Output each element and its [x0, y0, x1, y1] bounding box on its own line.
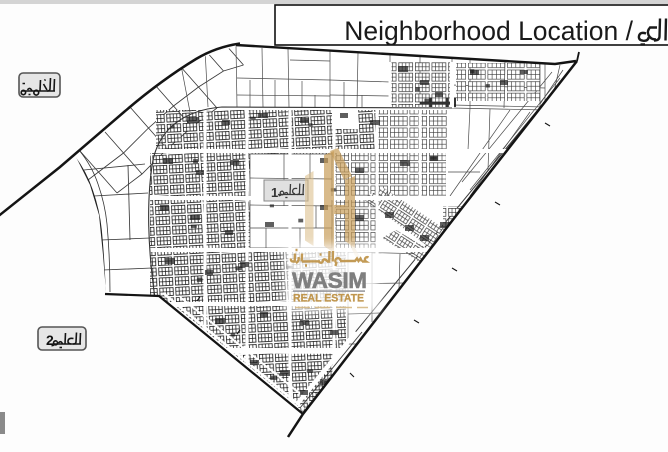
svg-text:1: 1	[271, 185, 278, 200]
svg-text:REAL ESTATE: REAL ESTATE	[293, 293, 364, 305]
svg-text:Neighborhood Location /: Neighborhood Location /	[344, 16, 633, 46]
svg-text:WASIM: WASIM	[292, 268, 367, 293]
